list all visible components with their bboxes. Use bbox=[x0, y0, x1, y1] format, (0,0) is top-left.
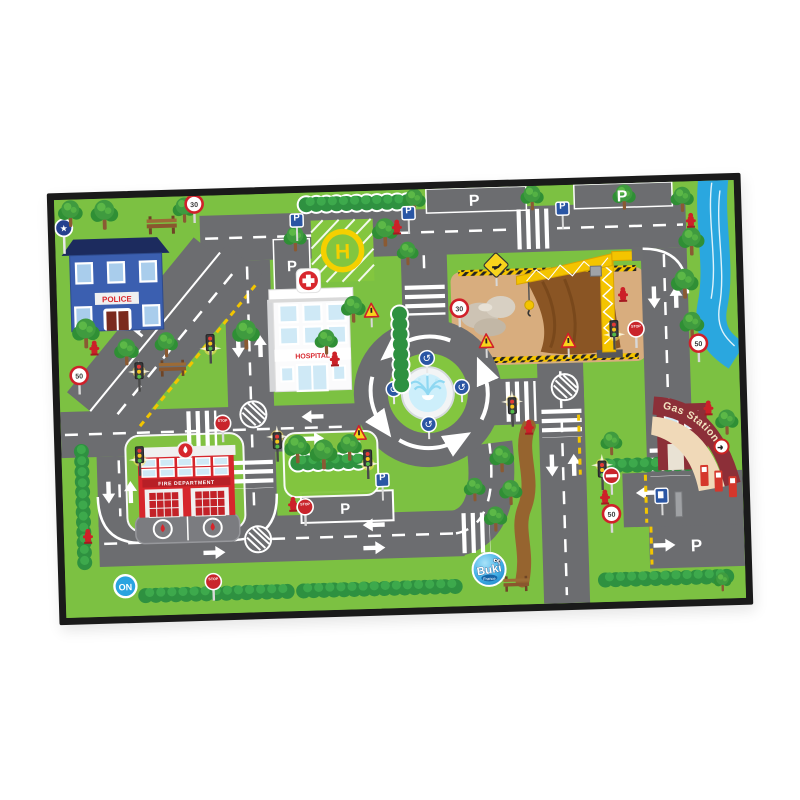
mat-scene: P bbox=[54, 180, 746, 618]
speed-sign-30-text: 30 bbox=[455, 306, 463, 313]
brand-logo: Buki France bbox=[472, 552, 506, 586]
product-photo: P bbox=[0, 0, 800, 800]
parking-mark: P bbox=[469, 193, 480, 210]
stop-sign-text: STOP bbox=[300, 502, 310, 506]
crane-hook-ball bbox=[525, 300, 534, 309]
speed-sign-50-text: 50 bbox=[608, 512, 616, 519]
roundabout-sign-glyph: ↺ bbox=[457, 383, 466, 394]
crane-cab bbox=[590, 266, 601, 276]
parking-sign-text: P bbox=[379, 472, 386, 483]
parking-mark: P bbox=[617, 188, 628, 205]
stop-sign-text: STOP bbox=[631, 324, 641, 328]
play-mat: P bbox=[47, 173, 754, 625]
junction-circle bbox=[245, 526, 272, 553]
parking-mark: P bbox=[340, 501, 351, 518]
parking-sign-text: P bbox=[559, 200, 566, 211]
police-label: POLICE bbox=[102, 294, 133, 304]
parking-sign-text: P bbox=[293, 212, 300, 223]
junction-circle bbox=[240, 401, 267, 428]
parking-mark: P bbox=[287, 258, 298, 275]
stop-sign-text: STOP bbox=[208, 577, 218, 581]
roundabout-sign-glyph: ↺ bbox=[424, 420, 433, 431]
police-badge-star: ★ bbox=[60, 223, 68, 233]
stop-sign-text: STOP bbox=[218, 419, 228, 423]
parking-mark: P bbox=[691, 536, 703, 555]
speed-sign-50-text: 50 bbox=[75, 373, 83, 380]
brand-sub: France bbox=[483, 576, 496, 581]
fire-station: FIRE DEPARTMENT bbox=[133, 441, 240, 544]
hospital-cross bbox=[296, 268, 321, 293]
roundabout-sign-glyph: ↺ bbox=[422, 354, 431, 365]
parking-sign-text: P bbox=[405, 205, 412, 216]
crane-counterweight bbox=[632, 247, 643, 261]
helipad-letter: H bbox=[335, 240, 351, 263]
speed-sign-30-text: 30 bbox=[190, 202, 198, 209]
power-on-mark: ON bbox=[114, 575, 137, 598]
junction-circle bbox=[551, 374, 578, 401]
gas-pillar bbox=[675, 492, 683, 517]
speed-sign-50-text: 50 bbox=[695, 341, 703, 348]
power-on-text: ON bbox=[119, 582, 133, 592]
